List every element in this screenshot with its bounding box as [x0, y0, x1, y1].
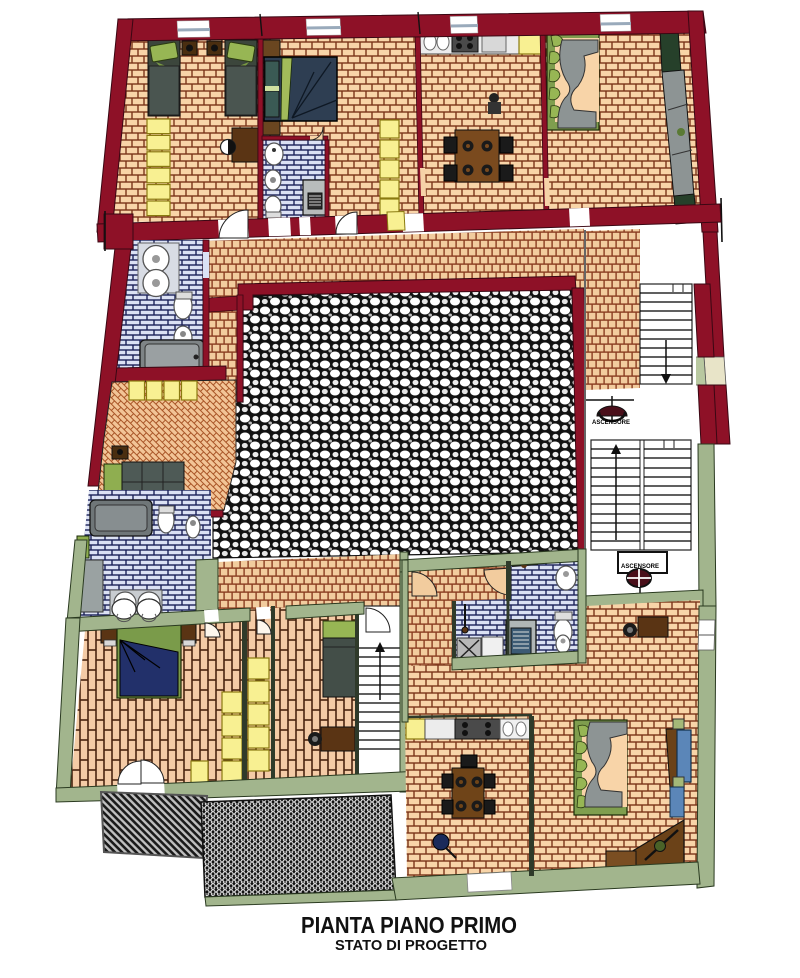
- svg-text:PIANTA PIANO PRIMO: PIANTA PIANO PRIMO: [301, 912, 517, 938]
- svg-text:ASCENSORE: ASCENSORE: [592, 420, 630, 426]
- svg-text:STATO DI PROGETTO: STATO DI PROGETTO: [335, 937, 487, 954]
